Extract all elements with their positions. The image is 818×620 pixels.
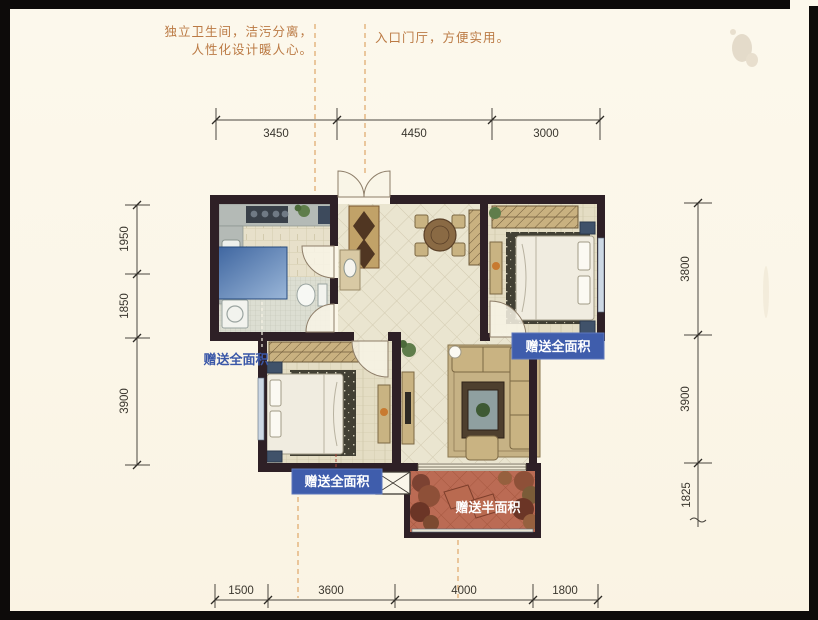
nightstand	[267, 362, 282, 373]
gift-label-right-text: 赠送全面积	[525, 339, 590, 354]
plant-icon	[489, 207, 501, 219]
side-table	[449, 346, 461, 358]
armchair	[466, 436, 498, 460]
annotation-entry: 入口门厅，方便实用。	[375, 30, 510, 45]
dim-label: 3900	[119, 388, 131, 414]
gift-label-bottom: 赠送全面积	[292, 469, 382, 494]
nightstand	[267, 451, 282, 462]
annotation-bathroom: 独立卫生间，洁污分离， 人性化设计暖人心。	[164, 24, 313, 57]
scanned-floorplan-page: 独立卫生间，洁污分离， 人性化设计暖人心。 入口门厅，方便实用。 3450 44…	[0, 0, 818, 620]
gift-label-bottom-text: 赠送全面积	[304, 474, 369, 489]
dim-label: 3900	[680, 386, 692, 412]
gift-label-right: 赠送全面积	[512, 333, 604, 359]
dim-label: 3800	[680, 256, 692, 282]
entry-door-leaf	[364, 171, 390, 197]
dim-label: 1950	[119, 226, 131, 252]
scan-smudge	[730, 29, 769, 318]
floor-plan-drawing: 独立卫生间，洁污分离， 人性化设计暖人心。 入口门厅，方便实用。 3450 44…	[0, 0, 818, 620]
window	[258, 378, 264, 440]
annotation-bathroom-line1: 独立卫生间，洁污分离，	[164, 24, 313, 39]
gift-label-balcony: 赠送半面积	[455, 500, 520, 515]
dim-label: 3000	[533, 128, 559, 140]
dim-label: 4450	[401, 128, 427, 140]
dimension-top: 3450 4450 3000	[212, 108, 604, 140]
toilet-icon	[318, 284, 327, 306]
dim-label: 1825	[681, 482, 693, 508]
annotation-bathroom-line2: 人性化设计暖人心。	[191, 42, 313, 57]
dim-label: 3600	[318, 585, 344, 597]
washing-machine-icon	[222, 300, 248, 328]
dim-label: 1850	[119, 293, 131, 319]
nightstand	[580, 222, 595, 234]
dimension-bottom: 1500 3600 4000 1800	[211, 584, 602, 608]
nightstand	[580, 321, 595, 333]
dimension-right: 3800 3900 1825	[680, 199, 712, 527]
window	[598, 238, 604, 312]
dim-label: 1800	[552, 585, 578, 597]
dim-label: 4000	[451, 585, 477, 597]
shoe-cabinet	[469, 210, 481, 265]
balcony-railing	[412, 529, 533, 532]
bay-window	[217, 247, 287, 299]
dimension-left: 1950 1850 3900	[119, 201, 150, 469]
entry-door-leaf	[338, 171, 364, 197]
gift-label-left: 赠送全面积	[203, 352, 268, 367]
dim-label: 3450	[263, 128, 289, 140]
dim-label: 1500	[228, 585, 254, 597]
